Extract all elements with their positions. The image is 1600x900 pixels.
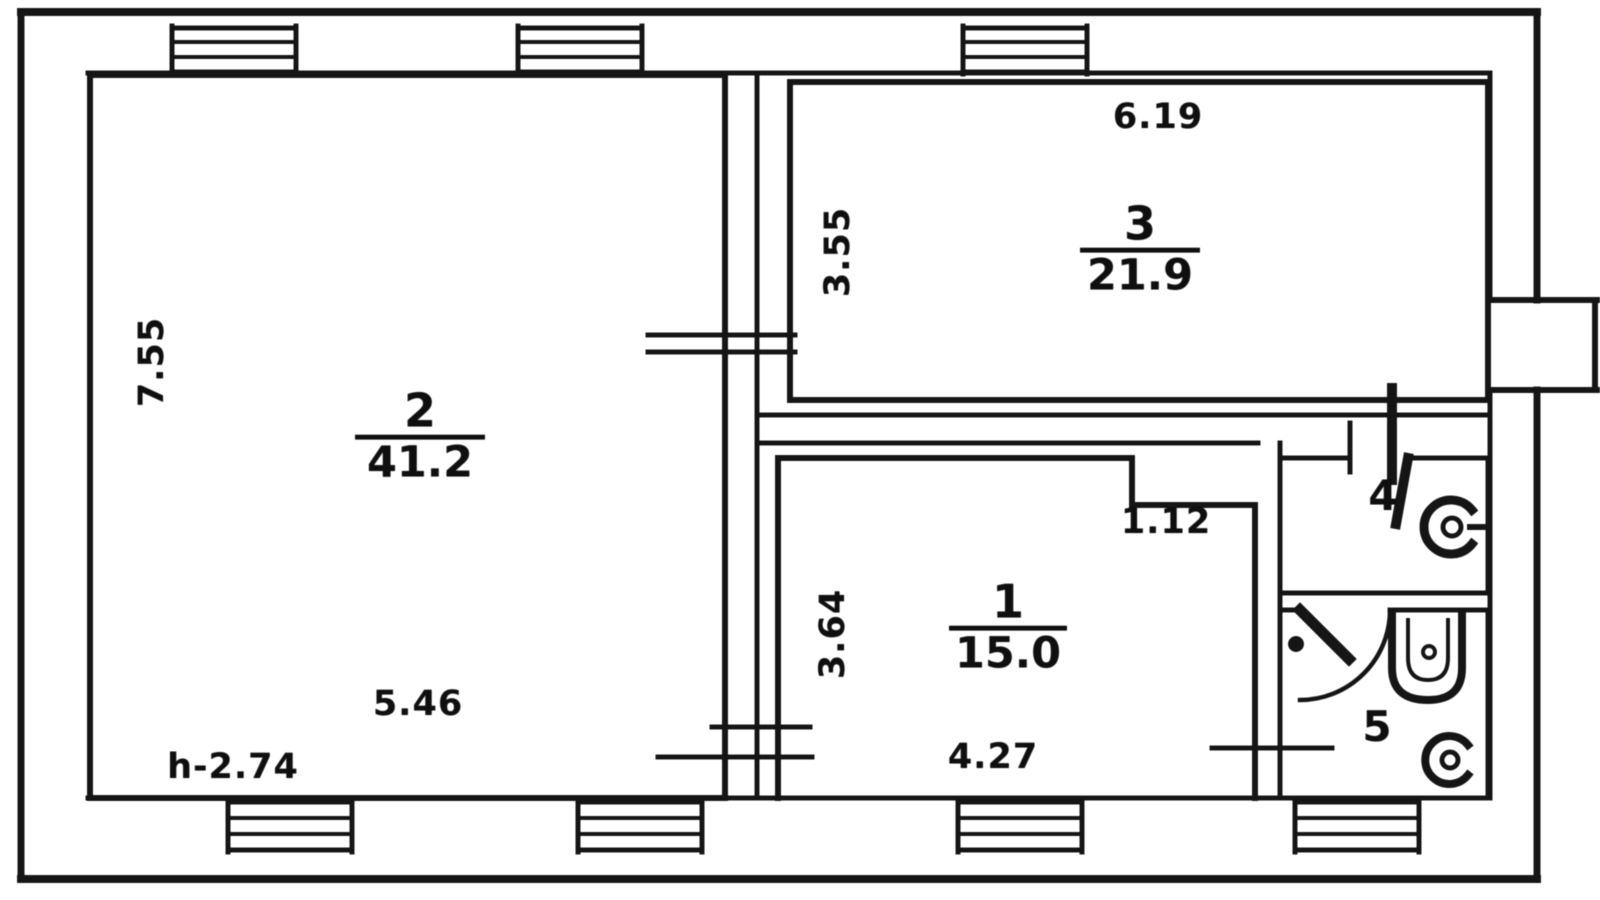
room3-number: 3 bbox=[1124, 203, 1156, 247]
room4-door-leaf bbox=[1396, 458, 1408, 524]
window bbox=[1295, 800, 1419, 852]
window bbox=[578, 800, 702, 852]
room3-area: 21.9 bbox=[1087, 254, 1193, 297]
toilet-icon bbox=[1424, 500, 1488, 554]
room2-width-dim: 5.46 bbox=[373, 684, 463, 724]
room1-height-dim: 3.64 bbox=[813, 589, 853, 679]
room1-number: 1 bbox=[992, 581, 1024, 625]
room1-notch-dim: 1.12 bbox=[1121, 502, 1211, 542]
room4-number: 4 bbox=[1368, 476, 1397, 516]
room4-label: 4 bbox=[1368, 476, 1397, 516]
room3-width-dim: 6.19 bbox=[1113, 97, 1203, 137]
windows-top bbox=[172, 26, 1087, 74]
room5-number: 5 bbox=[1362, 707, 1391, 747]
room3-height-dim: 3.55 bbox=[818, 207, 858, 297]
room1-width-dim: 4.27 bbox=[948, 737, 1038, 777]
room1-label: 1 15.0 bbox=[949, 581, 1067, 676]
room2-height-dim: 7.55 bbox=[132, 317, 172, 407]
window bbox=[228, 800, 352, 852]
window bbox=[958, 800, 1082, 852]
right-wall-notch bbox=[1490, 300, 1597, 390]
door-swing-icon bbox=[1288, 610, 1390, 700]
room2-number: 2 bbox=[404, 390, 436, 434]
room5-label: 5 bbox=[1362, 707, 1391, 747]
room3-label: 3 21.9 bbox=[1080, 203, 1200, 298]
window bbox=[172, 26, 296, 74]
room2-area: 41.2 bbox=[367, 441, 473, 484]
room2-label: 2 41.2 bbox=[355, 390, 485, 485]
window bbox=[963, 26, 1087, 74]
sink-icon bbox=[1392, 614, 1462, 700]
room2-ceiling-height: h-2.74 bbox=[167, 747, 299, 787]
windows-bottom bbox=[228, 800, 1419, 852]
toilet-icon bbox=[1425, 736, 1468, 784]
room1-area: 15.0 bbox=[955, 632, 1061, 675]
floor-plan-scan: 2 41.2 3 21.9 1 15.0 4 5 6.19 3.55 7.55 … bbox=[0, 0, 1600, 900]
window bbox=[518, 26, 642, 74]
